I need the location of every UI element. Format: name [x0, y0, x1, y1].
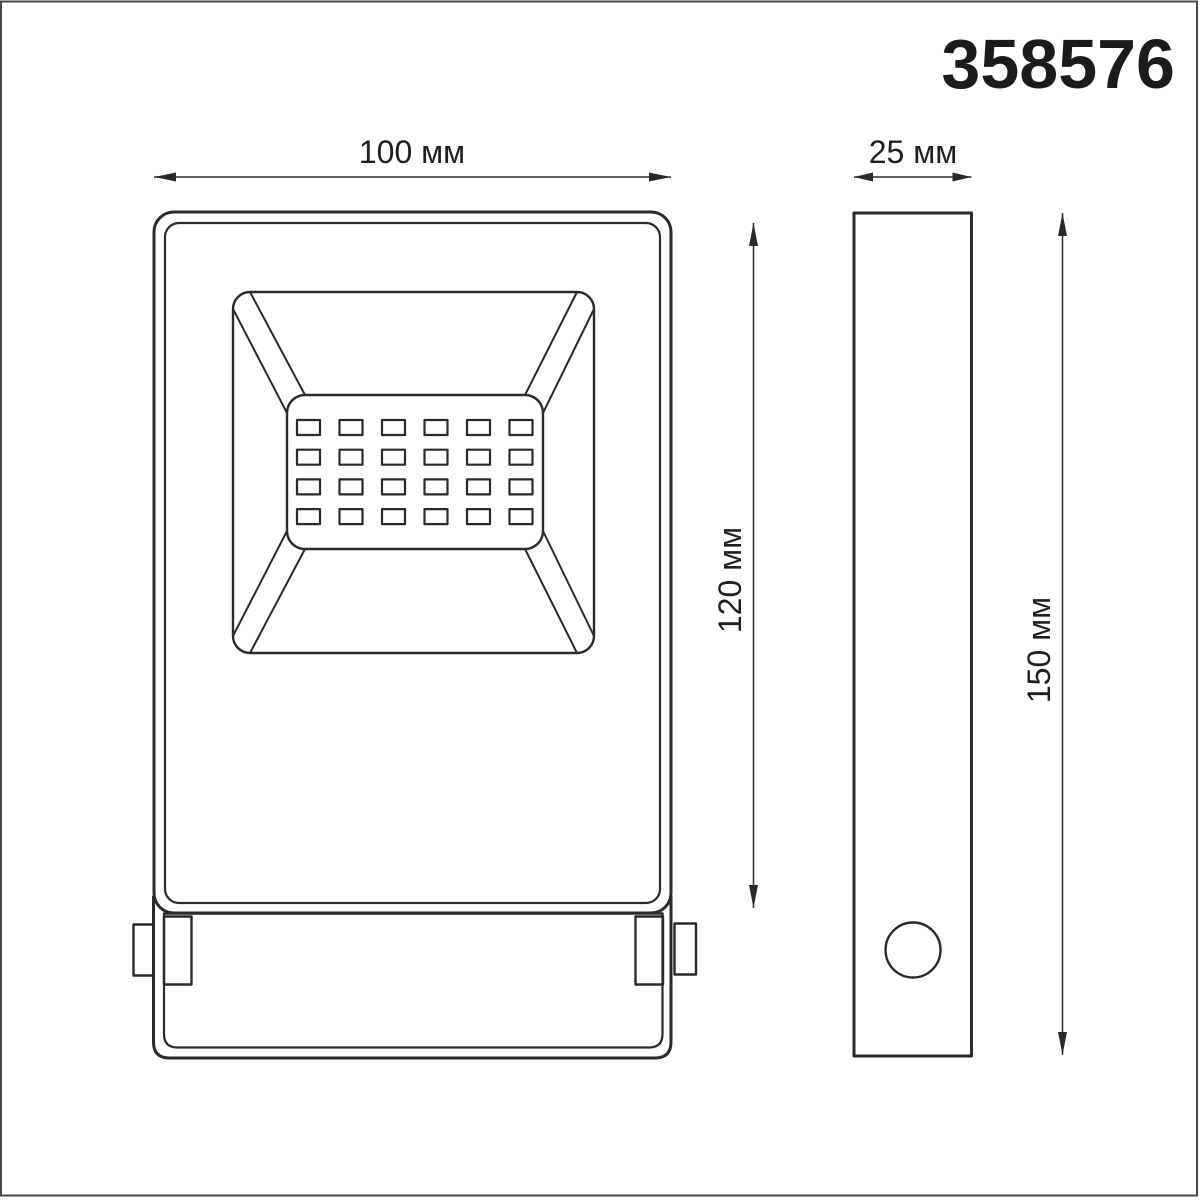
- arrowhead-left-icon: [854, 173, 873, 182]
- arrowhead-up-icon: [1058, 213, 1067, 236]
- bracket-knob-left: [134, 925, 154, 976]
- dimension-total-height-label: 150 мм: [1021, 597, 1057, 703]
- arrowhead-down-icon: [1058, 1032, 1067, 1055]
- dimension-body-height: 120 мм: [712, 223, 758, 908]
- diagonal-top-left-b: [233, 309, 287, 413]
- product-code: 358576: [941, 25, 1175, 103]
- diagonal-top-left-a: [250, 292, 305, 395]
- front-view: [134, 212, 697, 1058]
- arrowhead-up-icon: [749, 223, 758, 246]
- side-view: [854, 213, 972, 1056]
- sheet-border: [1, 2, 1197, 1196]
- drawing-sheet: 100 мм 25 мм 120 мм 150 мм 358576: [0, 0, 1200, 1200]
- mounting-bracket: [134, 897, 697, 1058]
- dimension-depth-label: 25 мм: [869, 134, 957, 170]
- arrowhead-right-icon: [649, 173, 671, 182]
- arrowhead-down-icon: [749, 885, 758, 908]
- technical-drawing: 100 мм 25 мм 120 мм 150 мм 358576: [0, 0, 1200, 1200]
- dimension-total-height: 150 мм: [1021, 213, 1067, 1055]
- arrowhead-left-icon: [154, 173, 176, 182]
- dimension-depth: 25 мм: [854, 134, 972, 182]
- diagonal-bottom-left-b: [250, 549, 305, 653]
- cable-gland-circle: [886, 923, 941, 978]
- bracket-arm-left: [164, 917, 192, 985]
- bracket-arm-right: [636, 917, 664, 985]
- diagonal-bottom-right-a: [543, 531, 594, 636]
- diagonal-top-right-a: [525, 292, 577, 395]
- diagonal-top-right-b: [543, 309, 594, 413]
- dimension-body-height-label: 120 мм: [712, 527, 748, 633]
- dimension-width: 100 мм: [154, 134, 671, 182]
- arrowhead-right-icon: [953, 173, 972, 182]
- dimension-width-label: 100 мм: [359, 134, 465, 170]
- bracket-outer-outline: [154, 897, 672, 1058]
- led-panel: [287, 395, 543, 549]
- bracket-inner-outline: [164, 914, 663, 1048]
- bracket-knob-right: [675, 924, 697, 975]
- diagonal-bottom-left-a: [233, 531, 287, 636]
- diagonal-bottom-right-b: [525, 549, 577, 653]
- side-profile-outline: [854, 213, 972, 1056]
